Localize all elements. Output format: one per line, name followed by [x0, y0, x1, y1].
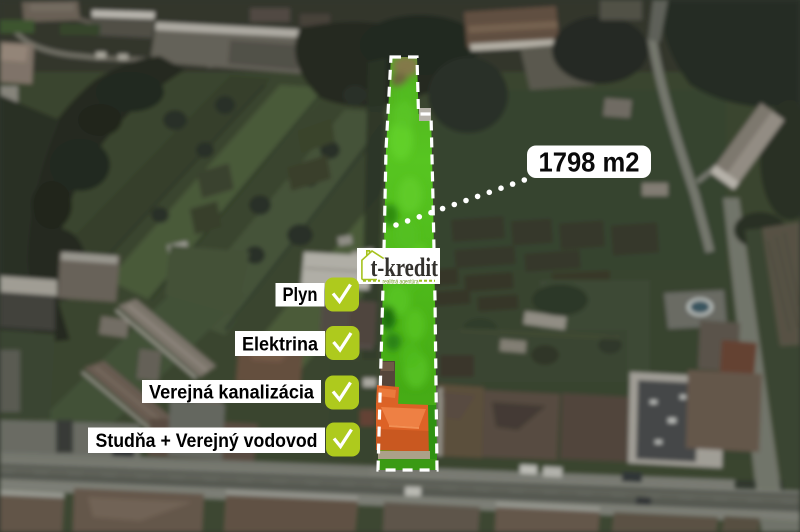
- svg-text:Verejná kanalizácia: Verejná kanalizácia: [149, 383, 314, 404]
- svg-text:Plyn: Plyn: [283, 285, 318, 306]
- svg-text:1798 m2: 1798 m2: [539, 147, 640, 178]
- svg-text:Studňa + Verejný vodovod: Studňa + Verejný vodovod: [96, 431, 318, 452]
- svg-text:realitná agentúra: realitná agentúra: [383, 280, 420, 286]
- svg-text:t-kredit: t-kredit: [371, 253, 439, 282]
- svg-text:Elektrina: Elektrina: [242, 335, 318, 356]
